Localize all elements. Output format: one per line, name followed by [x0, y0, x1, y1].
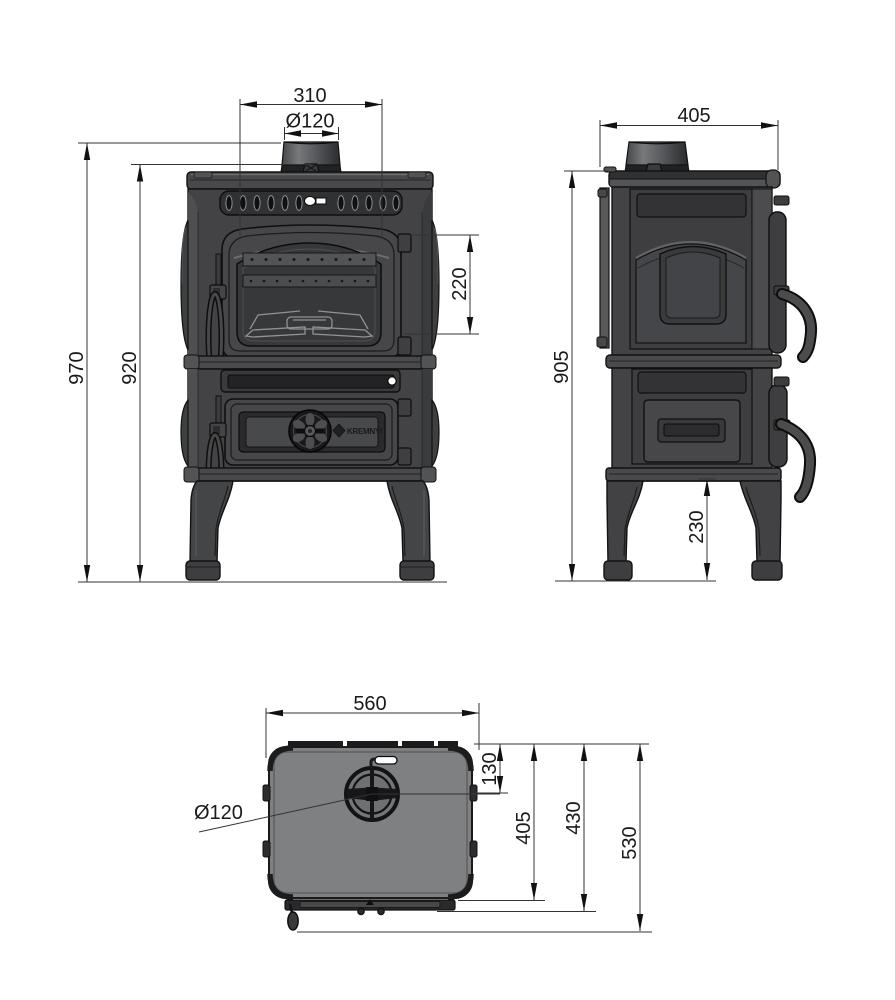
- svg-text:KREMNYI: KREMNYI: [347, 427, 382, 436]
- svg-text:970: 970: [66, 351, 88, 384]
- svg-text:530: 530: [619, 826, 641, 859]
- svg-text:920: 920: [119, 351, 141, 384]
- svg-text:310: 310: [293, 85, 326, 107]
- svg-text:Ø120: Ø120: [286, 111, 335, 133]
- svg-text:405: 405: [677, 105, 710, 127]
- svg-text:905: 905: [551, 350, 573, 383]
- svg-text:430: 430: [563, 801, 585, 834]
- svg-text:Ø120: Ø120: [194, 802, 243, 824]
- svg-text:230: 230: [686, 510, 708, 543]
- svg-text:405: 405: [513, 811, 535, 844]
- svg-text:560: 560: [353, 693, 386, 715]
- svg-text:220: 220: [449, 267, 471, 300]
- svg-text:130: 130: [479, 752, 501, 785]
